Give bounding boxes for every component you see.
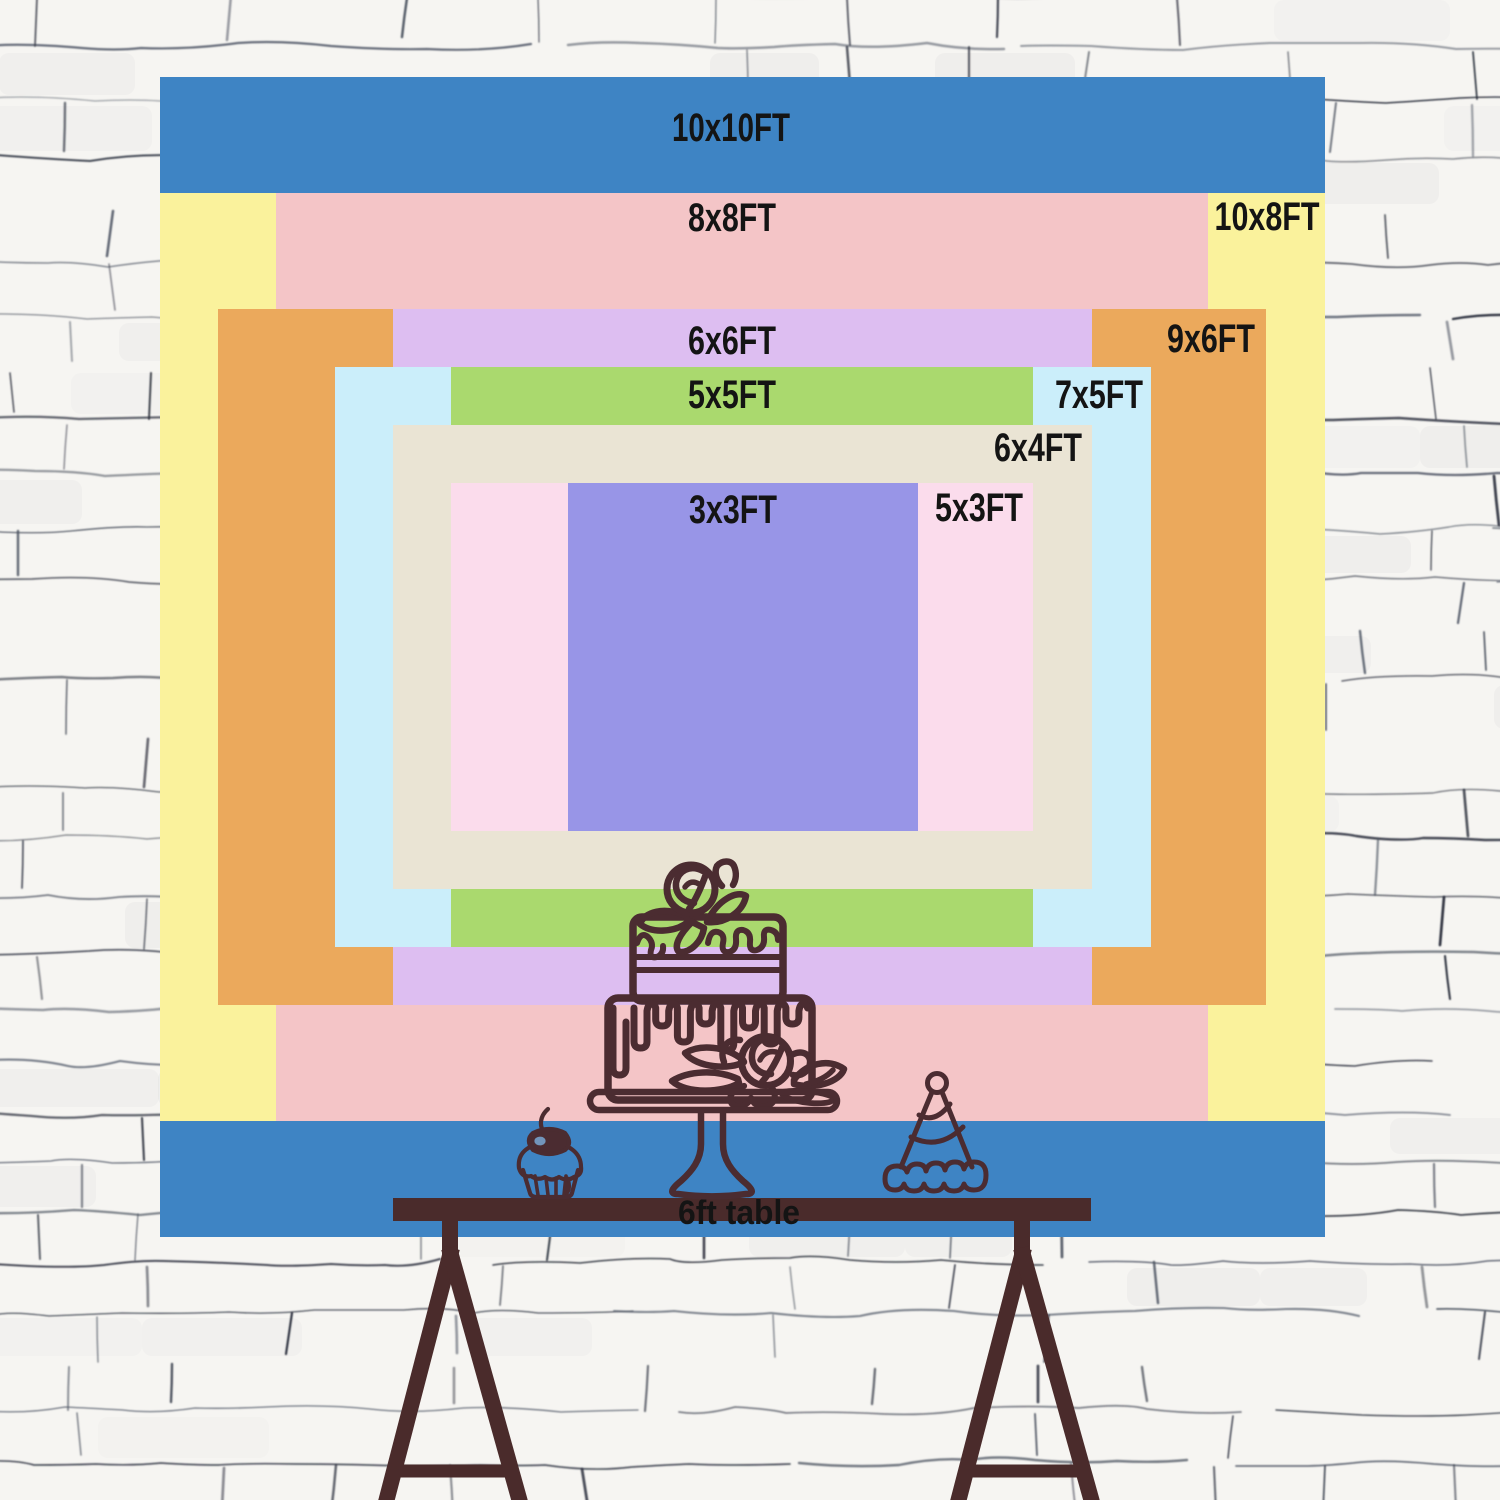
svg-text:6x6FT: 6x6FT (688, 319, 776, 363)
svg-text:5x5FT: 5x5FT (688, 373, 776, 417)
svg-text:9x6FT: 9x6FT (1167, 317, 1255, 361)
svg-text:6ft table: 6ft table (678, 1194, 800, 1232)
svg-text:10x10FT: 10x10FT (672, 106, 790, 150)
svg-text:8x8FT: 8x8FT (688, 196, 776, 240)
svg-text:10x8FT: 10x8FT (1215, 195, 1320, 239)
svg-text:6x4FT: 6x4FT (994, 426, 1082, 470)
svg-text:7x5FT: 7x5FT (1055, 373, 1143, 417)
svg-text:3x3FT: 3x3FT (689, 488, 777, 532)
svg-text:5x3FT: 5x3FT (935, 486, 1023, 530)
